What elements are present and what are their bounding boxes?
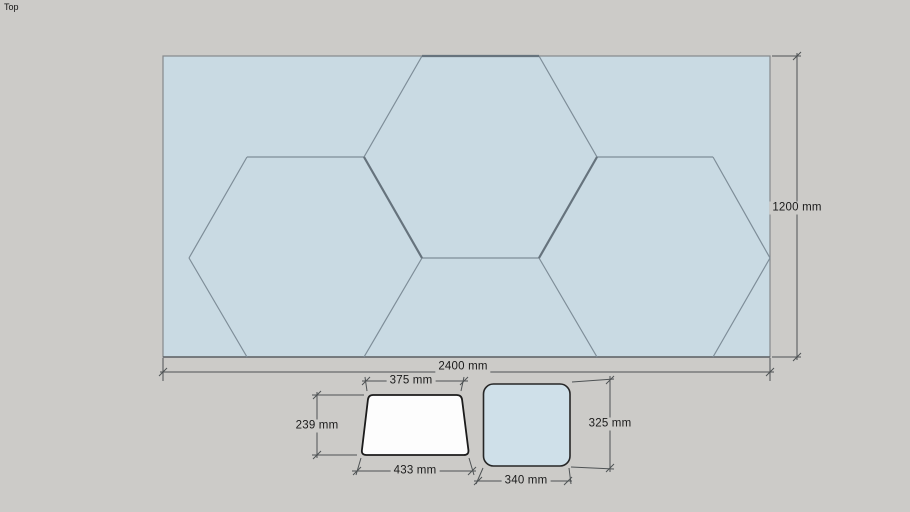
dim-label-trapezoid-top: 375 mm [387, 375, 436, 388]
square-tile-shape[interactable] [484, 384, 571, 466]
trapezoid-shape[interactable] [362, 395, 469, 455]
viewport-name-label: Top [4, 2, 19, 12]
panel-face[interactable] [163, 56, 770, 357]
dim-label-panel-height: 1200 mm [769, 202, 824, 215]
dim-label-trapezoid-height: 239 mm [293, 420, 342, 433]
dim-label-trapezoid-bottom: 433 mm [391, 465, 440, 478]
panel-shape[interactable] [163, 56, 770, 357]
model-drawing [0, 0, 910, 512]
dim-label-panel-width: 2400 mm [435, 361, 490, 374]
viewport-canvas[interactable]: Top 2400 mm 1200 mm 375 mm 239 mm 433 mm… [0, 0, 910, 512]
dim-label-square-width: 340 mm [502, 475, 551, 488]
dim-label-square-height: 325 mm [586, 418, 635, 431]
